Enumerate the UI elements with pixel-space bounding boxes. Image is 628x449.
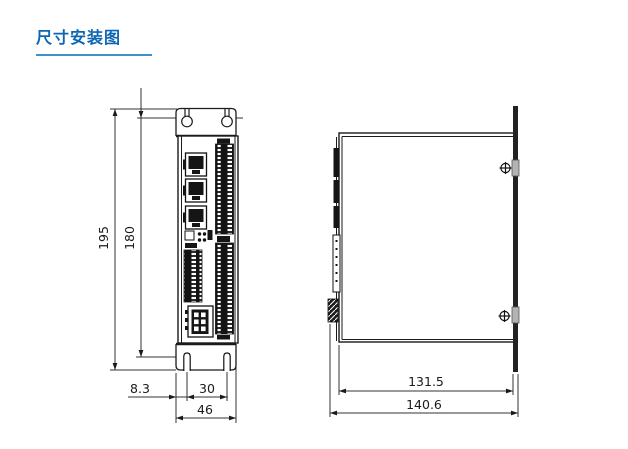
dim-overall-height-label: 195 (96, 226, 111, 250)
arrowhead-right-icon (169, 395, 176, 400)
rj45-port-icon (183, 206, 207, 229)
front-view: 195 180 (96, 88, 243, 423)
rj45-ports (183, 153, 207, 229)
dim-body-depth-label: 131.5 (408, 374, 444, 389)
dim-overall-height: 195 (96, 109, 117, 370)
top-mounting-plate (176, 109, 236, 137)
dim-body-depth: 131.5 (339, 374, 513, 393)
mounting-slot-icon (224, 353, 230, 371)
connector-cap (217, 139, 230, 144)
side-view: 131.5 140.6 (328, 106, 519, 417)
arrowhead-right-icon (506, 389, 513, 394)
arrowhead-right-icon (220, 395, 227, 400)
terminal-strip-left (184, 250, 202, 302)
dim-overall-width: 46 (176, 402, 236, 420)
arrowhead-up-icon (113, 109, 118, 116)
dim-hole-spacing-label: 30 (199, 381, 215, 396)
rj45-port-icon (183, 153, 207, 176)
arrowhead-down-icon (139, 350, 144, 357)
dim-bottom-row: 8.3 30 (128, 381, 228, 399)
rj45-port-icon (183, 179, 207, 202)
connector-cap (217, 335, 230, 340)
dim-overall-depth: 140.6 (330, 397, 518, 415)
dim-edge-to-hole-label: 8.3 (130, 381, 150, 396)
terminal-strip-right-lower (216, 243, 234, 334)
terminal-strip-right-upper (216, 144, 234, 234)
dimension-drawing: 195 180 (0, 0, 628, 449)
plate-notch (512, 307, 519, 323)
arrowhead-right-icon (229, 416, 236, 421)
connector-profile (334, 148, 340, 177)
dim-overall-width-label: 46 (197, 402, 213, 417)
power-connector (185, 306, 213, 337)
arrowhead-left-icon (330, 411, 337, 416)
connector-profile (334, 180, 340, 203)
dim-mounting-height-label: 180 (122, 226, 137, 250)
dim-mounting-height: 180 (122, 88, 143, 357)
arrowhead-down-icon (139, 111, 144, 118)
arrowhead-down-icon (113, 363, 118, 370)
plate-notch (512, 160, 519, 176)
power-connector-profile (328, 299, 338, 322)
mounting-slot-icon (184, 353, 190, 371)
connector-cap (217, 236, 230, 242)
connector-profile (334, 206, 340, 228)
arrowhead-left-icon (339, 389, 346, 394)
arrowhead-right-icon (511, 411, 518, 416)
dim-overall-depth-label: 140.6 (406, 397, 442, 412)
bottom-mounting-plate (176, 344, 236, 371)
mounting-plate-bar (512, 106, 519, 372)
terminal-profile (333, 235, 340, 292)
arrowhead-left-icon (176, 416, 183, 421)
side-front-edge (328, 137, 340, 341)
arrowhead-left-icon (187, 395, 194, 400)
device-body-side (339, 133, 514, 342)
